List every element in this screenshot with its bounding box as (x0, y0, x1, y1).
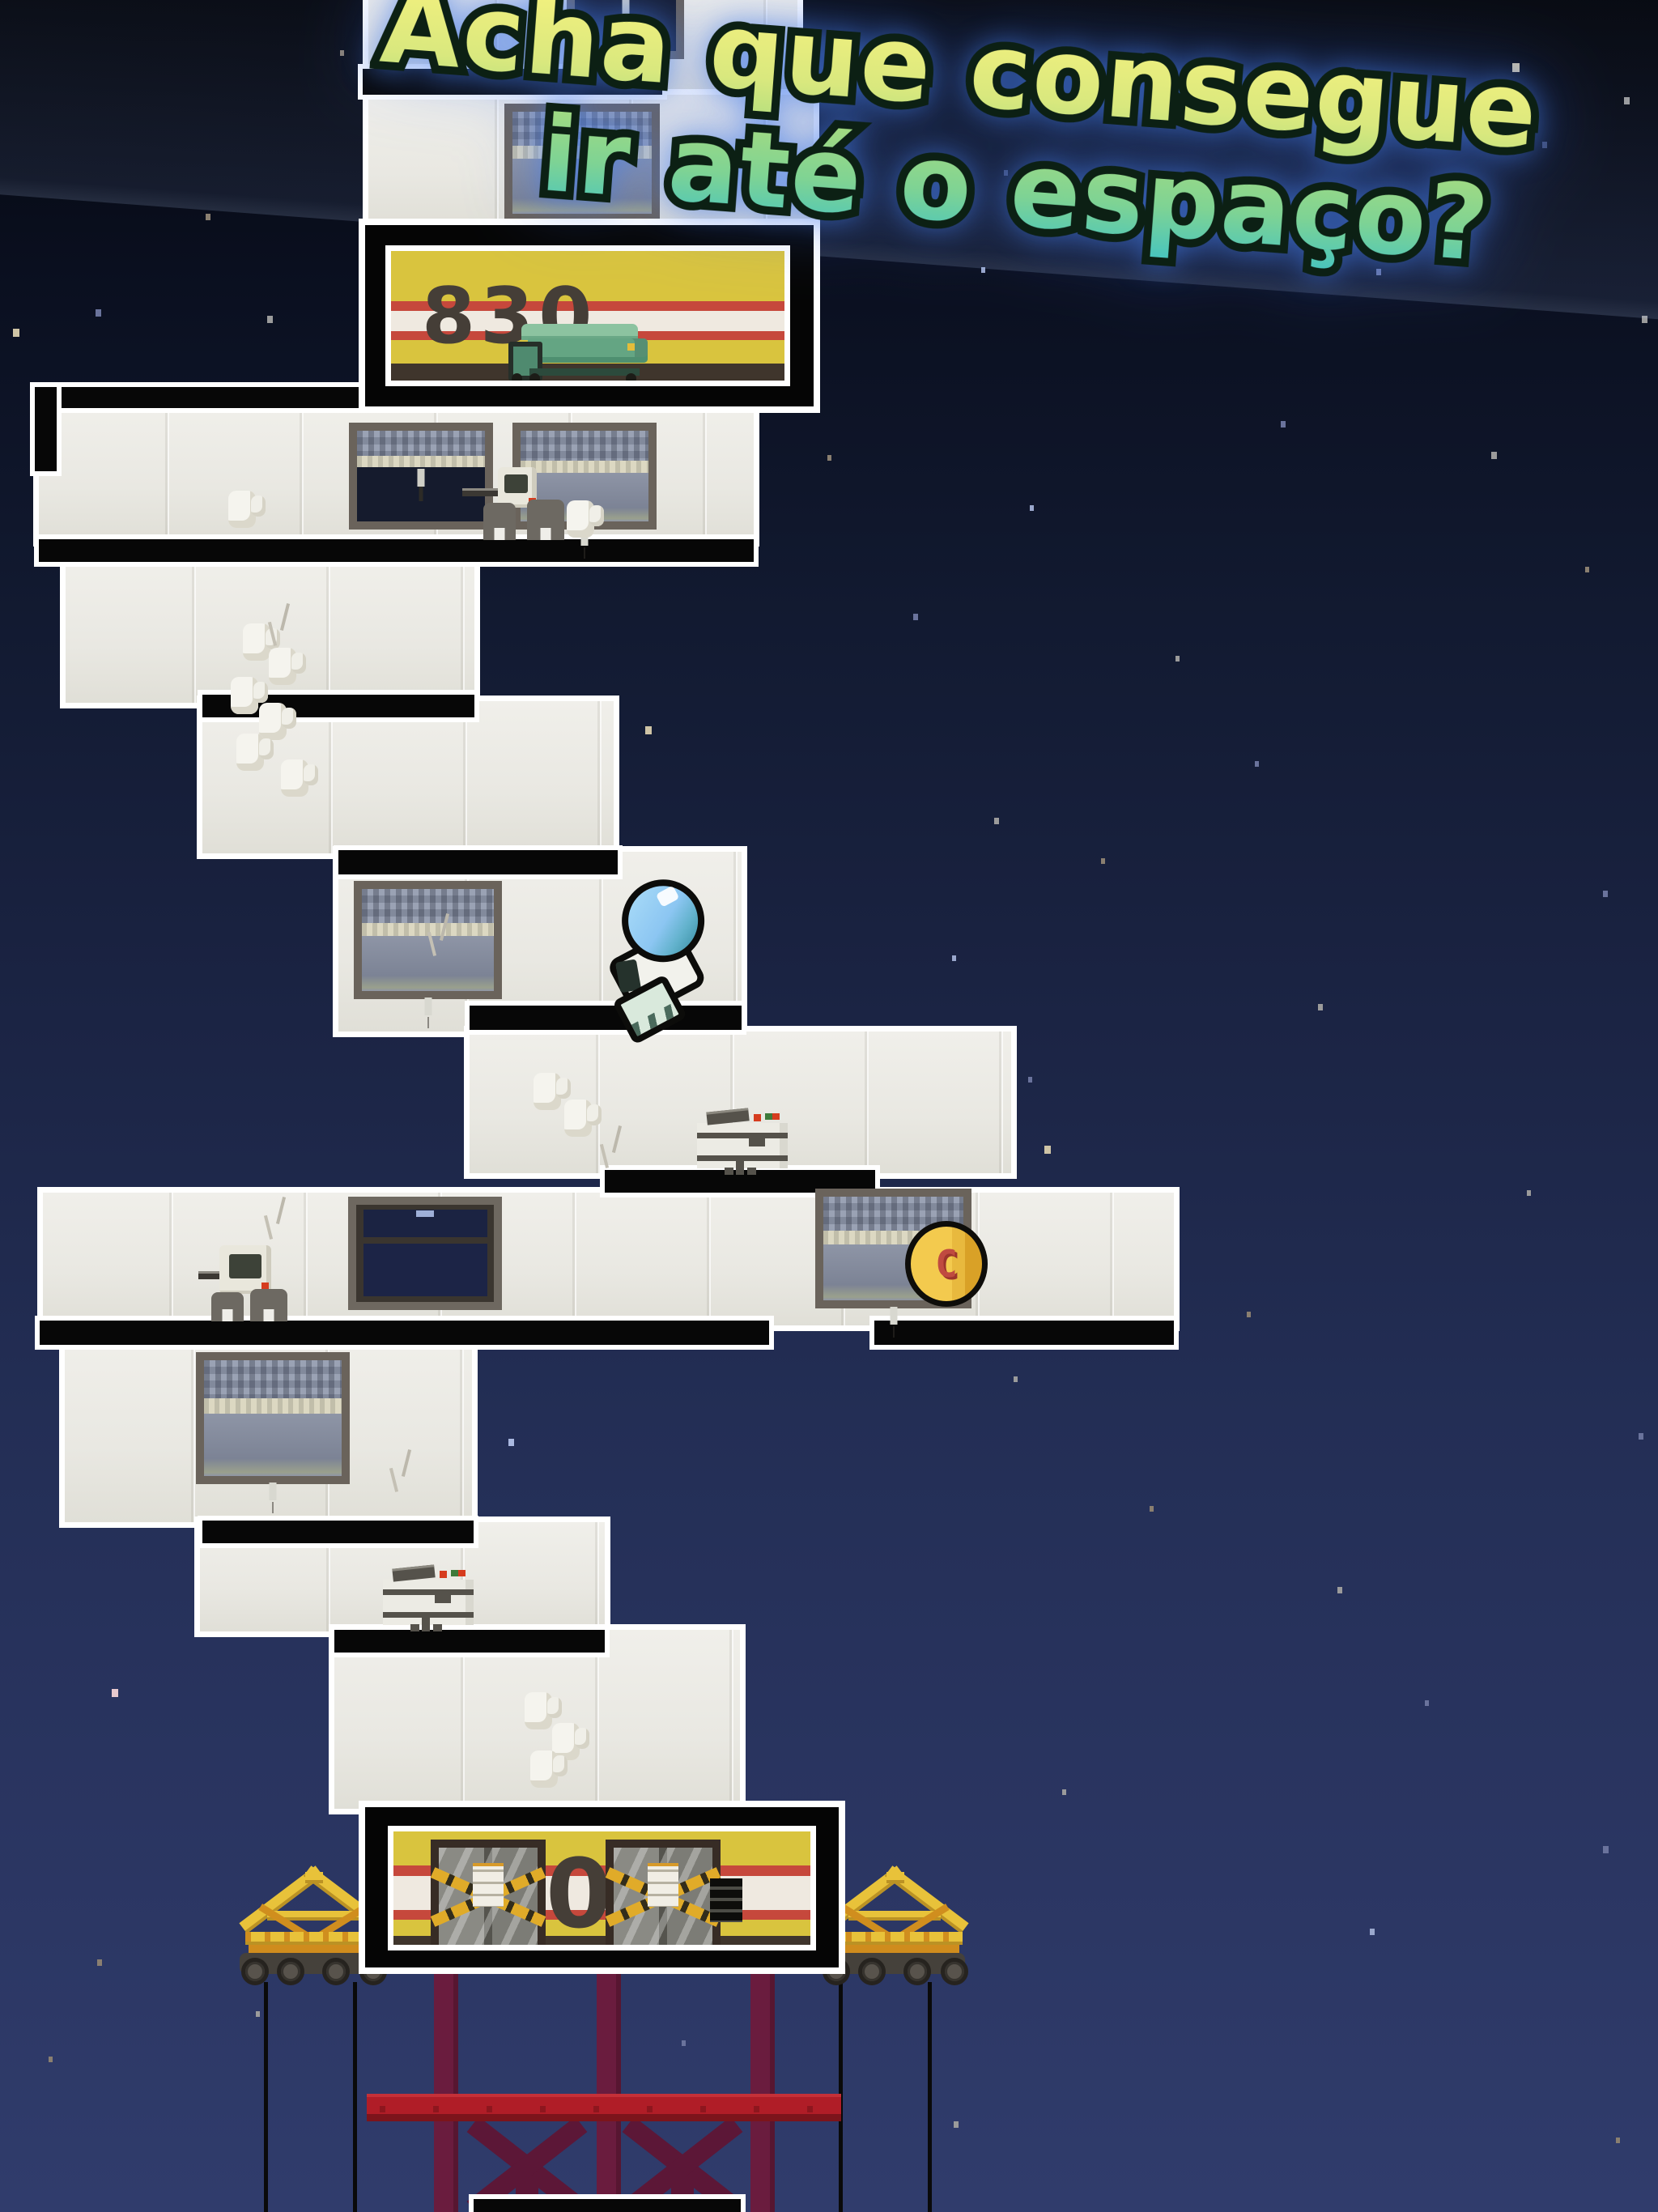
printer-foot (747, 1168, 756, 1175)
wall-splat-decal (281, 759, 308, 797)
hazard-door (606, 1840, 721, 1950)
couch-sprite (508, 324, 648, 377)
printer-lights (451, 1570, 466, 1576)
shutter-handle (890, 1307, 897, 1325)
window-dark2 (348, 1197, 502, 1310)
coin-pickup: C (905, 1221, 988, 1307)
sign-billboard: 830 (385, 245, 790, 386)
printer-light-red (440, 1571, 447, 1578)
printer-groove (383, 1612, 474, 1618)
robot-leg (527, 500, 564, 540)
floor-platform (338, 850, 618, 874)
printer-foot (410, 1624, 419, 1631)
door-keypad (710, 1878, 742, 1922)
floor-platform (202, 1521, 474, 1543)
base-station-panel: 0 (365, 1807, 839, 1967)
robot-character (462, 467, 569, 540)
printer-groove (697, 1155, 788, 1161)
printer-sprite (383, 1567, 477, 1631)
floor-platform (474, 2199, 741, 2212)
couch-wheel (529, 373, 540, 384)
robot-screen (504, 474, 528, 493)
door-notice-paper (470, 1860, 507, 1910)
wall-splat-decal (534, 1073, 561, 1110)
printer-groove (697, 1133, 788, 1138)
floor-platform (874, 1321, 1174, 1345)
printer-stand (422, 1618, 430, 1631)
floor-platform (40, 1321, 769, 1345)
game-screen: 830 (0, 0, 1658, 2212)
floor-platform (470, 1006, 742, 1030)
robot-leg (483, 503, 516, 540)
wall-splat-decal (231, 677, 258, 714)
couch-wheel (626, 373, 636, 384)
helmet-shine (656, 886, 680, 908)
printer-light-red (754, 1114, 761, 1121)
floor-platform (35, 387, 375, 408)
window-knob (416, 1210, 434, 1217)
wall-splat-decal (530, 1750, 558, 1788)
printer-sprite (697, 1110, 791, 1175)
shutter-handle (418, 469, 425, 487)
printer-foot (725, 1168, 733, 1175)
printer-slot (435, 1595, 451, 1603)
monitor-robot-character (198, 1245, 295, 1321)
couch-base (529, 368, 640, 376)
robot-screen (229, 1254, 261, 1278)
hazard-door (431, 1840, 546, 1950)
door-notice-paper (644, 1860, 682, 1910)
wall-splat-decal (243, 623, 270, 661)
robot-leg (250, 1289, 287, 1321)
wall-splat-decal (525, 1692, 552, 1729)
printer-foot (433, 1624, 442, 1631)
robot-leg (211, 1292, 244, 1321)
printer-lights (765, 1113, 780, 1120)
floor-platform (334, 1630, 605, 1653)
couch-seat (528, 338, 648, 363)
window-shutter (196, 1352, 350, 1484)
floor-platform (39, 539, 754, 562)
wall-splat-decal (269, 648, 296, 685)
wall-splat-decal (236, 734, 264, 771)
wall-splat-decal (259, 703, 287, 740)
window-shutter (354, 881, 502, 999)
shutter-lower (362, 936, 494, 991)
wall-splat-decal (228, 491, 256, 528)
floor-sign-panel: 830 (365, 225, 814, 406)
couch-detail-dot (627, 343, 635, 351)
coin-letter: C (935, 1242, 958, 1286)
wall-splat-decal (564, 1100, 592, 1137)
floor-platform (35, 387, 57, 471)
window-pane (363, 1244, 487, 1296)
printer-groove (383, 1589, 474, 1595)
printer-stand (736, 1161, 744, 1175)
couch-wheel (512, 373, 522, 384)
shutter-handle (424, 998, 432, 1015)
shutter-handle (270, 1482, 277, 1500)
shutter-band (204, 1398, 342, 1414)
couch-backrest (521, 324, 638, 340)
shutter-lower (204, 1414, 342, 1476)
wall-splat-decal (567, 500, 594, 538)
shutter-band (357, 456, 485, 466)
station-billboard: 0 (388, 1826, 816, 1950)
printer-slot (749, 1138, 765, 1146)
